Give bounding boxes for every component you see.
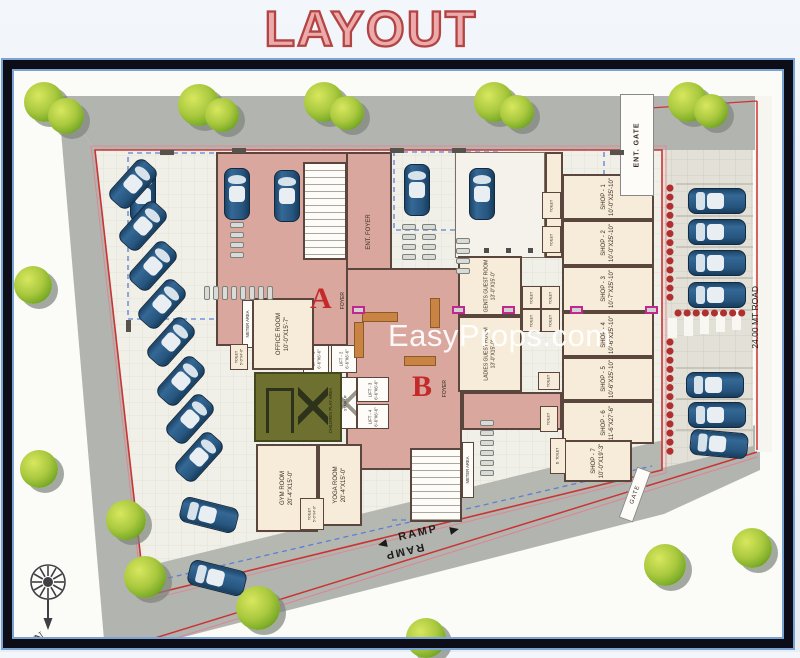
door-marker-icon <box>452 306 465 314</box>
wall-stub <box>610 150 624 155</box>
shop-6-size: 11'-6"X27'-6" <box>608 405 616 439</box>
scooter-icon <box>230 242 244 248</box>
scooter-icon <box>480 440 494 446</box>
yoga-room: YOGA ROOM20'-4"X15'-0" <box>318 444 362 526</box>
car <box>224 168 250 220</box>
scooter-icon <box>204 286 210 300</box>
lift-3: LIFT - 36'-6"X6'-6" <box>357 377 389 402</box>
compass-north-label: N <box>31 628 48 646</box>
climber-icon <box>298 384 328 428</box>
car <box>688 188 746 214</box>
wall-stub <box>126 320 131 332</box>
shop-5-size: 10'-6"X25'-10" <box>608 360 616 398</box>
scooter-icon <box>456 248 470 254</box>
toilet-shop1-label: TOILET <box>549 199 554 211</box>
top-road <box>58 96 762 150</box>
shop-6-label: SHOP - 6 <box>600 405 608 439</box>
two-wheeler-column <box>456 238 470 274</box>
yoga-label: YOGA ROOM <box>332 466 340 503</box>
office-room: OFFICE ROOM10'-0"X15'-7" <box>252 298 314 370</box>
scooter-icon <box>480 470 494 476</box>
tree-icon <box>644 544 686 586</box>
scooter-icon <box>422 254 436 260</box>
shop-2: SHOP - 210'-0"X25'-10" <box>562 220 654 266</box>
shop-1-label: SHOP - 1 <box>600 178 608 216</box>
scooter-icon <box>230 232 244 238</box>
toilet-gym-size: 5'-0"X4'-0" <box>312 506 317 522</box>
entry-gate-label: ENT. GATE <box>632 122 641 167</box>
top-staircase <box>303 162 347 260</box>
shop-2-label: SHOP - 2 <box>600 224 608 262</box>
lift-4-size: 6'-6"X6'-6" <box>373 407 379 426</box>
lift-4-label: LIFT - 4 <box>367 407 373 426</box>
wing-a-letter: A <box>310 282 332 316</box>
meter-area-a-label: METER AREA <box>245 311 251 338</box>
stair-up-label: STAIR UP <box>343 395 348 411</box>
scooter-icon <box>422 244 436 250</box>
scooter-icon <box>456 258 470 264</box>
wing-b-letter: B <box>412 370 432 404</box>
children-play-label: CHILDREN PLAY AREA <box>328 388 333 433</box>
car <box>469 168 495 220</box>
toilet-a-size: 5'-0"X4'-0" <box>239 349 244 365</box>
lift-2-size: 6'-6"X6'-6" <box>344 349 350 368</box>
door-marker-icon <box>352 306 365 314</box>
scooter-icon <box>258 286 264 300</box>
tree-icon <box>236 586 280 630</box>
compass-rose: N <box>22 558 74 646</box>
car <box>688 250 746 276</box>
wall-stub <box>390 148 404 153</box>
lift-4: LIFT - 46'-6"X6'-6" <box>357 404 389 429</box>
two-wheeler-column <box>480 420 494 476</box>
tree-icon <box>694 94 728 128</box>
toilet-shop5-label: TOILET <box>547 375 552 387</box>
scooter-icon <box>422 234 436 240</box>
toilet-shop6: TOILET <box>540 406 558 432</box>
gym-label: GYM ROOM <box>279 471 287 506</box>
watermark: EasyProps.com <box>388 318 612 354</box>
yoga-size: 20'-4"X15'-0" <box>340 466 348 503</box>
tree-icon <box>124 556 166 598</box>
car <box>688 402 746 428</box>
d-toilet-label: D. TOILET <box>556 448 561 465</box>
toilet-2: TOILET <box>541 286 560 309</box>
scooter-icon <box>249 286 255 300</box>
office-size: 10'-0"X15'-7" <box>283 313 291 355</box>
shop-5-label: SHOP - 5 <box>600 360 608 398</box>
car <box>404 164 430 216</box>
tree-icon <box>20 450 58 488</box>
toilet-2-label: TOILET <box>548 291 553 303</box>
tree-icon <box>406 618 446 658</box>
scooter-icon <box>480 420 494 426</box>
shop-7: SHOP - 710'-0"X19'-3" <box>564 440 632 482</box>
car <box>689 429 749 460</box>
scooter-icon <box>231 286 237 300</box>
wall-stub <box>452 148 466 153</box>
bottom-staircase <box>410 448 462 522</box>
scooter-icon <box>456 268 470 274</box>
door-marker-icon <box>570 306 583 314</box>
toilet-gym: TOILET5'-0"X4'-0" <box>300 498 324 530</box>
entry-gate: ENT. GATE <box>620 94 654 196</box>
meter-area-b: METER AREA <box>462 442 474 498</box>
wall-stub <box>232 148 246 153</box>
toilet-a: TOILET5'-0"X4'-0" <box>230 344 248 370</box>
scooter-icon <box>402 244 416 250</box>
tree-icon <box>330 96 364 130</box>
door-marker-icon <box>502 306 515 314</box>
bench <box>354 322 364 358</box>
tree-icon <box>48 98 84 134</box>
d-toilet-shop7: D. TOILET <box>550 438 566 474</box>
shop-3-label: SHOP - 3 <box>600 270 608 308</box>
gents-guest-size: 13'-0"X15'-0" <box>490 260 497 313</box>
toilet-1-label: TOILET <box>529 291 534 303</box>
scooter-icon <box>240 286 246 300</box>
ent-foyer-label: ENT. FOYER <box>365 214 373 249</box>
tree-icon <box>106 500 146 540</box>
toilet-shop6-label: TOILET <box>547 413 552 425</box>
shop-1-size: 10'-0"X25'-10" <box>608 178 616 216</box>
two-wheeler-row <box>204 286 273 300</box>
lift-1-size: 6'-6"X6'-6" <box>316 349 322 368</box>
column-icon <box>506 248 511 253</box>
scooter-icon <box>213 286 219 300</box>
door-marker-icon <box>645 306 658 314</box>
toilet-shop5: TOILET <box>538 372 560 390</box>
gym-size: 20'-4"X15'-0" <box>287 471 295 506</box>
column-icon <box>528 248 533 253</box>
lift-2-label: LIFT - 2 <box>338 349 344 368</box>
meter-area-b-label: METER AREA <box>465 457 471 484</box>
scooter-icon <box>480 460 494 466</box>
tree-icon <box>732 528 772 568</box>
lift-3-label: LIFT - 3 <box>367 380 373 399</box>
scooter-icon <box>267 286 273 300</box>
wing-b-foyer-label: FOYER <box>442 380 448 397</box>
road-label: 24.00 MT ROAD <box>750 286 760 349</box>
toilet-1: TOILET <box>522 286 541 309</box>
shop-7-label: SHOP - 7 <box>590 444 598 479</box>
gents-guest-label: GENTS GUEST ROOM <box>483 260 490 313</box>
tree-icon <box>14 266 52 304</box>
column-icon <box>484 248 489 253</box>
car <box>688 282 746 308</box>
scooter-icon <box>230 222 244 228</box>
scooter-icon <box>422 224 436 230</box>
scooter-icon <box>402 224 416 230</box>
scooter-icon <box>480 430 494 436</box>
toilet-shop2: TOILET <box>542 226 561 253</box>
shop-6: SHOP - 611'-6"X27'-6" <box>562 401 654 444</box>
tree-icon <box>205 98 239 132</box>
wing-a-foyer-label: FOYER <box>340 292 346 309</box>
two-wheeler-column <box>402 224 416 260</box>
shop-3-size: 10'-7"X25'-10" <box>608 270 616 308</box>
scooter-icon <box>480 450 494 456</box>
bench <box>404 356 436 366</box>
car <box>274 170 300 222</box>
car <box>688 219 746 245</box>
shop-2-size: 10'-0"X25'-10" <box>608 224 616 262</box>
toilet-shop1: TOILET <box>542 192 561 219</box>
office-label: OFFICE ROOM <box>275 313 283 355</box>
two-wheeler-column <box>230 222 244 258</box>
lift-3-size: 6'-6"X6'-6" <box>373 380 379 399</box>
page-title: LAYOUT <box>0 0 742 58</box>
foyer-b-area <box>346 268 462 470</box>
car <box>686 372 744 398</box>
shop-7-size: 10'-0"X19'-3" <box>598 444 606 479</box>
scooter-icon <box>402 254 416 260</box>
scooter-icon <box>222 286 228 300</box>
exit-gate-label: GATE <box>628 484 642 505</box>
toilet-shop2-label: TOILET <box>549 233 554 245</box>
shop-5: SHOP - 510'-6"X25'-10" <box>562 357 654 401</box>
swing-icon <box>266 388 294 433</box>
wall-stub <box>160 150 174 155</box>
tree-icon <box>500 95 534 129</box>
scooter-icon <box>230 252 244 258</box>
two-wheeler-column <box>422 224 436 260</box>
scooter-icon <box>456 238 470 244</box>
scooter-icon <box>402 234 416 240</box>
